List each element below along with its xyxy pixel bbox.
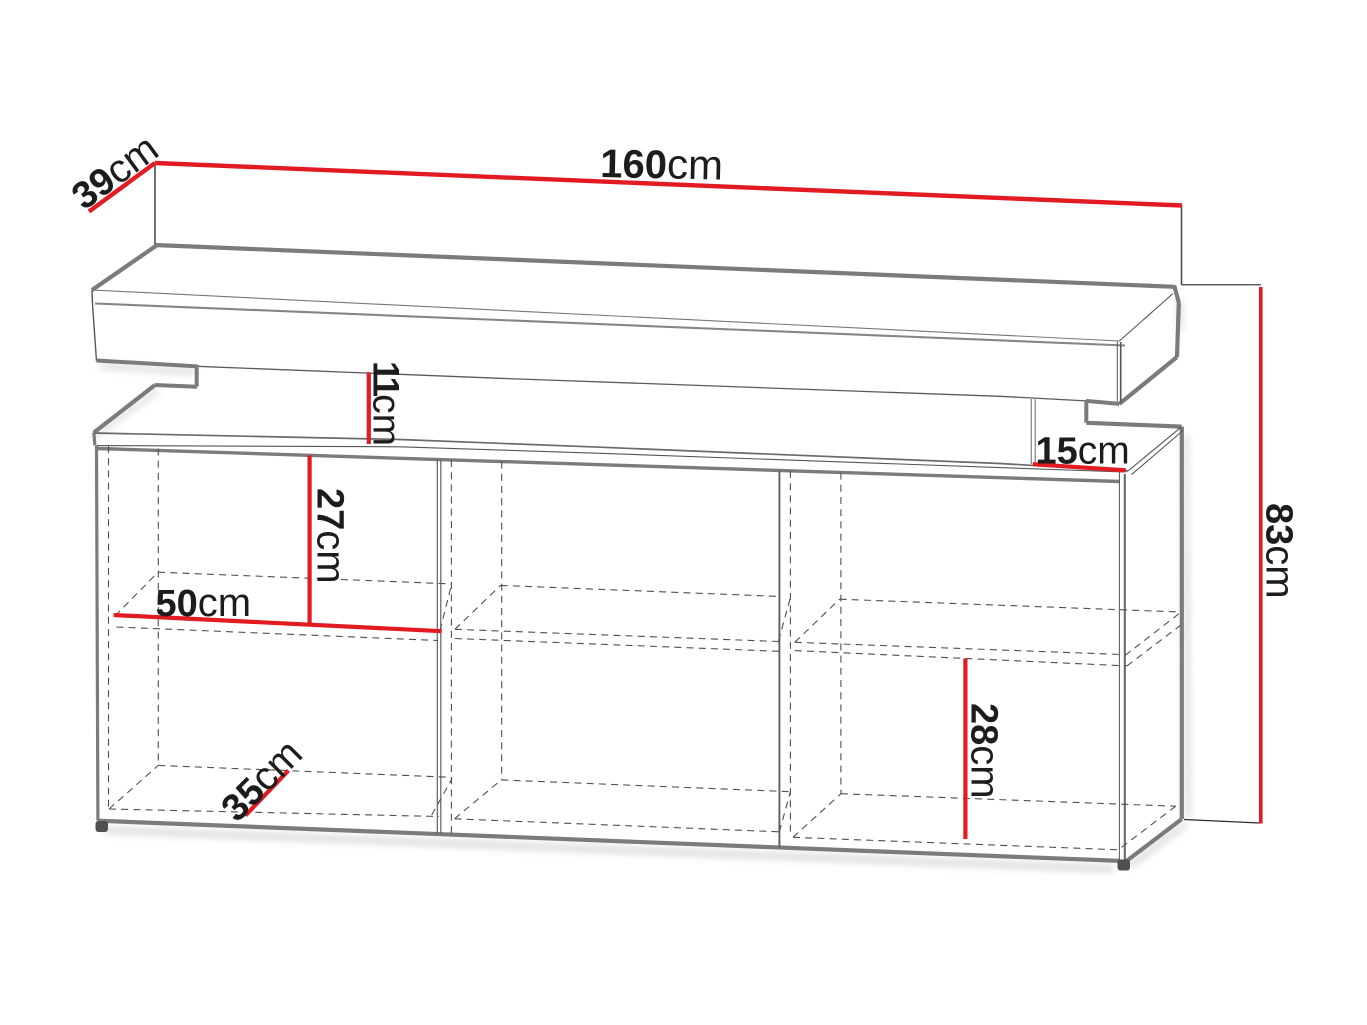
svg-text:35cm: 35cm — [212, 731, 311, 830]
svg-text:83cm: 83cm — [1258, 503, 1302, 599]
svg-text:50cm: 50cm — [156, 581, 252, 625]
svg-text:11cm: 11cm — [365, 361, 408, 446]
svg-text:28cm: 28cm — [963, 703, 1007, 799]
svg-text:39cm: 39cm — [63, 126, 166, 218]
svg-text:15cm: 15cm — [1036, 429, 1130, 472]
svg-text:160cm: 160cm — [600, 139, 724, 189]
svg-text:27cm: 27cm — [309, 488, 353, 584]
